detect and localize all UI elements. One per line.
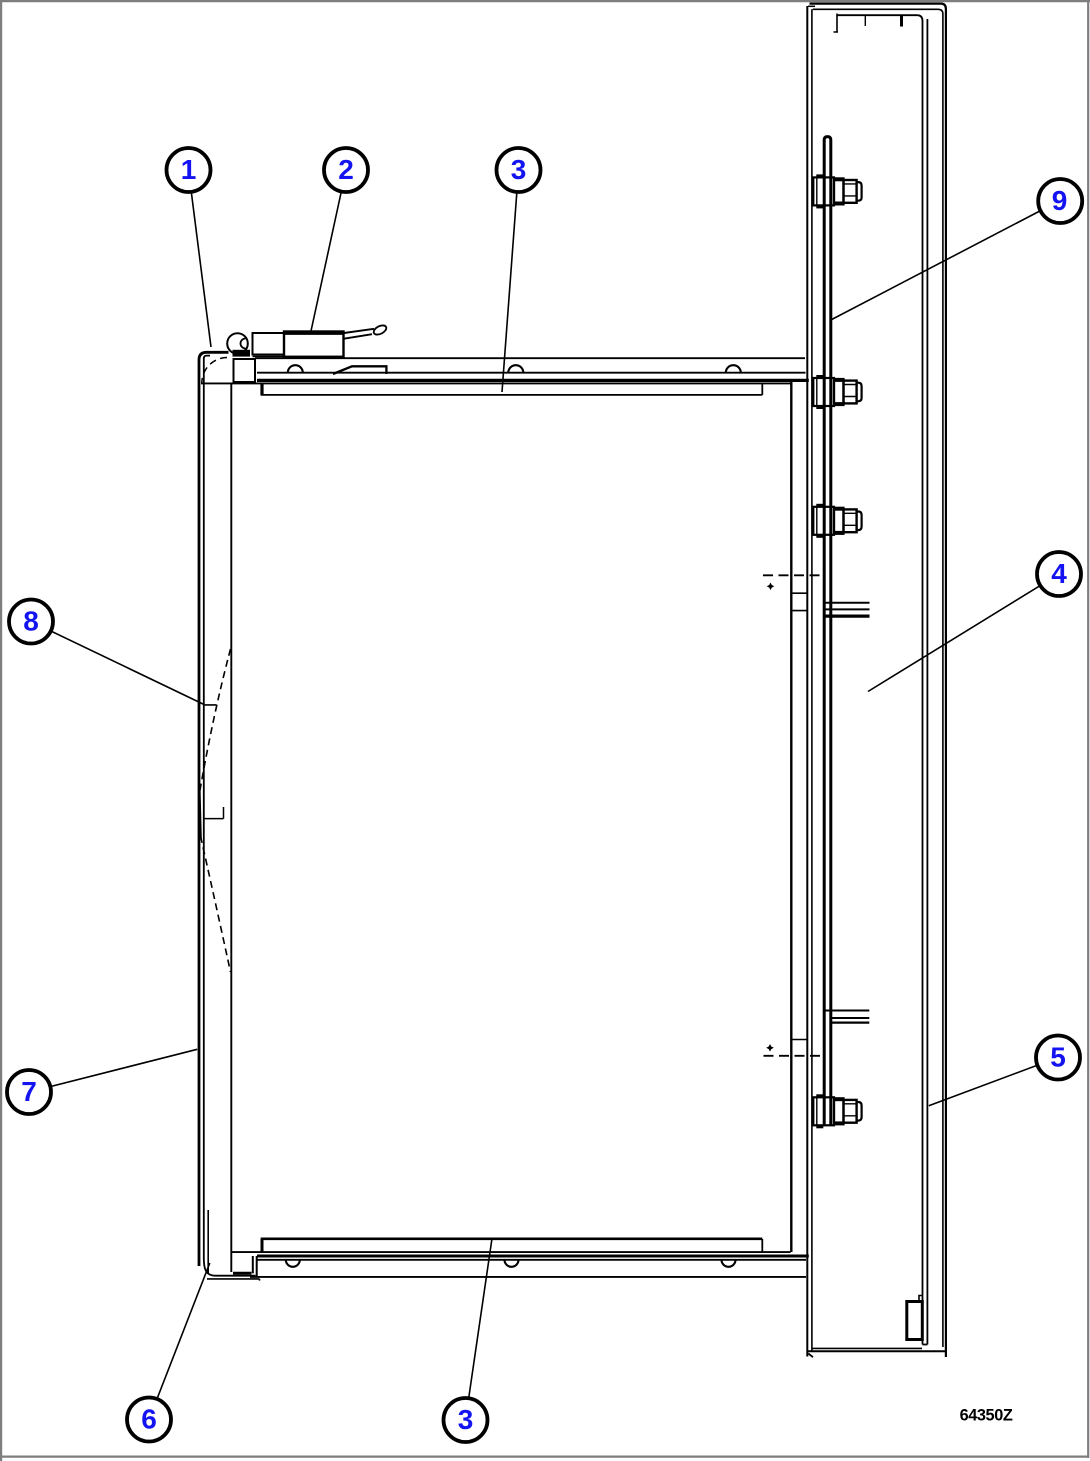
svg-text:7: 7 — [21, 1076, 37, 1107]
svg-text:8: 8 — [23, 606, 39, 637]
svg-text:4: 4 — [1051, 558, 1067, 589]
svg-text:6: 6 — [141, 1404, 157, 1435]
svg-text:3: 3 — [458, 1404, 474, 1435]
svg-text:1: 1 — [181, 154, 197, 185]
svg-text:3: 3 — [511, 154, 527, 185]
svg-text:2: 2 — [338, 154, 354, 185]
svg-text:9: 9 — [1052, 185, 1068, 216]
svg-text:5: 5 — [1050, 1042, 1066, 1073]
svg-text:64350Z: 64350Z — [960, 1406, 1013, 1424]
